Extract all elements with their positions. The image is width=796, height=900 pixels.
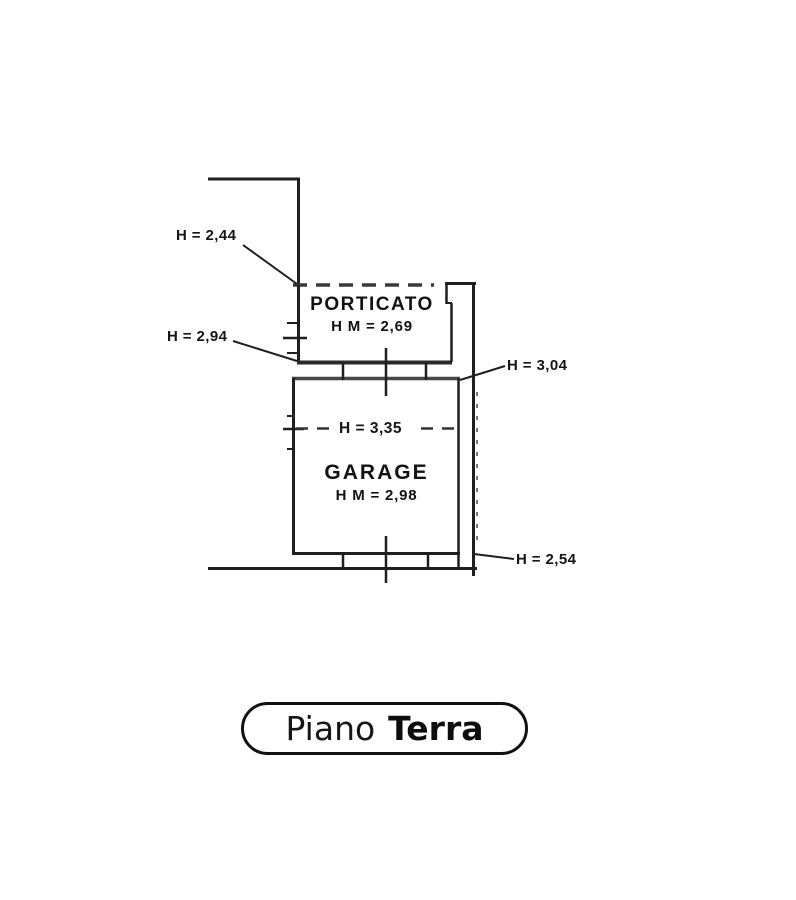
leader-line-h294 — [233, 341, 297, 361]
floor-plan-drawing — [0, 0, 796, 900]
floor-title-word-terra: Terra — [388, 709, 483, 748]
porticato-height: H M = 2,69 — [299, 318, 445, 335]
label-h244: H = 2,44 — [176, 227, 236, 244]
label-h304: H = 3,04 — [507, 357, 567, 374]
garage-name: GARAGE — [294, 461, 459, 485]
leader-line-h244 — [243, 245, 297, 284]
floor-plan-page: H = 2,44 H = 2,94 H = 3,04 H = 2,54 H = … — [0, 0, 796, 900]
room-label-garage: GARAGE H M = 2,98 — [294, 461, 459, 504]
room-label-porticato: PORTICATO H M = 2,69 — [299, 294, 445, 335]
leader-line-h254 — [474, 554, 514, 559]
label-h294: H = 2,94 — [167, 328, 227, 345]
label-h335: H = 3,35 — [336, 420, 405, 438]
porticato-name: PORTICATO — [299, 294, 445, 316]
floor-title-pill: Piano Terra — [241, 702, 528, 755]
label-h254: H = 2,54 — [516, 551, 576, 568]
garage-height: H M = 2,98 — [294, 487, 459, 504]
leader-line-h304 — [460, 366, 505, 380]
floor-title-word-piano: Piano — [286, 709, 376, 748]
